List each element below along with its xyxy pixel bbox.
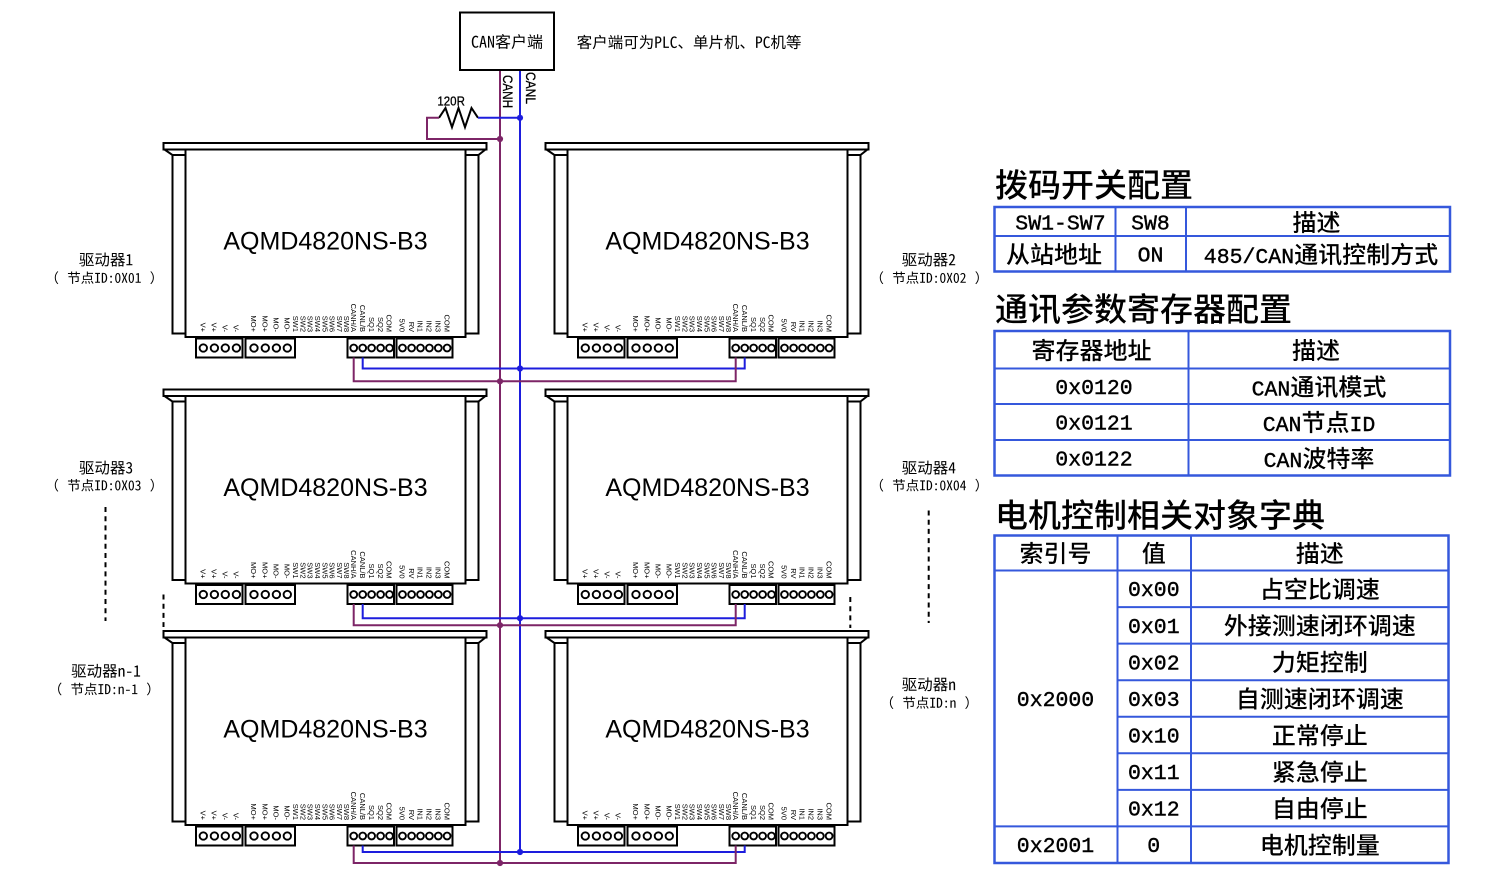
svg-text:AQMD4820NS-B3: AQMD4820NS-B3 xyxy=(605,474,809,502)
svg-text:IN2: IN2 xyxy=(807,808,816,820)
svg-text:V-: V- xyxy=(232,325,241,333)
svg-text:V+: V+ xyxy=(592,323,601,333)
svg-text:MO-: MO- xyxy=(283,317,292,332)
svg-text:SQ2: SQ2 xyxy=(758,317,767,332)
svg-text:CANH/A: CANH/A xyxy=(731,792,740,820)
svg-text:AQMD4820NS-B3: AQMD4820NS-B3 xyxy=(223,716,427,744)
svg-text:AQMD4820NS-B3: AQMD4820NS-B3 xyxy=(605,228,809,256)
svg-text:CANL/B: CANL/B xyxy=(740,305,749,332)
svg-text:V+: V+ xyxy=(210,569,219,579)
svg-text:MO+: MO+ xyxy=(249,316,258,333)
svg-text:0x12: 0x12 xyxy=(1128,799,1180,823)
svg-text:IN2: IN2 xyxy=(425,320,434,332)
svg-text:COM: COM xyxy=(442,561,451,579)
svg-text:V+: V+ xyxy=(199,323,208,333)
svg-text:0x11: 0x11 xyxy=(1128,762,1180,786)
svg-text:CANH/A: CANH/A xyxy=(731,304,740,332)
svg-text:V+: V+ xyxy=(581,323,590,333)
svg-text:COM: COM xyxy=(442,315,451,333)
svg-text:MO-: MO- xyxy=(665,805,674,820)
svg-text:MO+: MO+ xyxy=(261,316,270,333)
svg-text:ID: ID xyxy=(1350,414,1376,438)
svg-text:V-: V- xyxy=(614,325,623,333)
svg-text:COM: COM xyxy=(385,315,394,333)
svg-text:SQ1: SQ1 xyxy=(367,563,376,578)
svg-text:CANH/A: CANH/A xyxy=(349,792,358,820)
svg-text:SQ1: SQ1 xyxy=(749,317,758,332)
svg-text:0: 0 xyxy=(1147,835,1160,859)
svg-text:IN1: IN1 xyxy=(416,808,425,820)
svg-text:V+: V+ xyxy=(581,569,590,579)
svg-text:IN3: IN3 xyxy=(816,320,825,332)
svg-text:MO-: MO- xyxy=(272,564,281,579)
svg-text:MO-: MO- xyxy=(665,564,674,579)
svg-text:0x02: 0x02 xyxy=(1128,652,1180,676)
svg-text:COM: COM xyxy=(767,315,776,333)
svg-text:5V0: 5V0 xyxy=(780,807,789,820)
svg-text:IN2: IN2 xyxy=(807,567,816,579)
svg-text:0x01: 0x01 xyxy=(1128,616,1180,640)
svg-text:RV: RV xyxy=(407,568,416,578)
svg-text:V-: V- xyxy=(221,813,230,821)
svg-text:SQ1: SQ1 xyxy=(367,805,376,820)
svg-text:V+: V+ xyxy=(210,811,219,821)
svg-text:IN3: IN3 xyxy=(816,808,825,820)
svg-text:CANL/B: CANL/B xyxy=(358,793,367,820)
svg-text:V+: V+ xyxy=(592,569,601,579)
svg-text:COM: COM xyxy=(442,803,451,821)
svg-text:5V0: 5V0 xyxy=(780,565,789,578)
svg-text:0x0121: 0x0121 xyxy=(1055,412,1132,436)
svg-text:CANL/B: CANL/B xyxy=(358,305,367,332)
svg-text:MO-: MO- xyxy=(283,564,292,579)
svg-text:MO-: MO- xyxy=(272,317,281,332)
svg-text:IN3: IN3 xyxy=(434,320,443,332)
svg-text:0x0122: 0x0122 xyxy=(1055,448,1132,472)
svg-text:IN3: IN3 xyxy=(816,567,825,579)
svg-text:MO-: MO- xyxy=(654,805,663,820)
svg-text:0x03: 0x03 xyxy=(1128,689,1180,713)
svg-text:IN2: IN2 xyxy=(425,567,434,579)
svg-text:RV: RV xyxy=(789,568,798,578)
svg-text:IN1: IN1 xyxy=(798,567,807,579)
svg-text:485/CAN: 485/CAN xyxy=(1204,246,1294,270)
svg-text:COM: COM xyxy=(385,803,394,821)
svg-text:MO-: MO- xyxy=(665,317,674,332)
svg-text:5V0: 5V0 xyxy=(398,319,407,332)
svg-text:SQ2: SQ2 xyxy=(376,805,385,820)
svg-text:V+: V+ xyxy=(199,569,208,579)
svg-text:RV: RV xyxy=(789,322,798,332)
svg-text:COM: COM xyxy=(824,561,833,579)
svg-text:AQMD4820NS-B3: AQMD4820NS-B3 xyxy=(223,228,427,256)
svg-text:SQ1: SQ1 xyxy=(749,805,758,820)
svg-text:SQ2: SQ2 xyxy=(376,317,385,332)
svg-text:V+: V+ xyxy=(199,811,208,821)
svg-text:MO-: MO- xyxy=(283,805,292,820)
svg-text:SW1-SW7: SW1-SW7 xyxy=(1015,212,1105,236)
svg-text:MO-: MO- xyxy=(272,805,281,820)
svg-text:COM: COM xyxy=(824,803,833,821)
svg-text:IN1: IN1 xyxy=(416,320,425,332)
svg-text:COM: COM xyxy=(767,561,776,579)
svg-text:IN1: IN1 xyxy=(798,320,807,332)
svg-text:V-: V- xyxy=(614,571,623,579)
svg-text:120R: 120R xyxy=(437,94,465,109)
svg-text:MO+: MO+ xyxy=(261,804,270,821)
svg-text:CANL: CANL xyxy=(523,72,538,104)
svg-text:SQ2: SQ2 xyxy=(376,563,385,578)
svg-text:RV: RV xyxy=(407,322,416,332)
svg-text:SQ1: SQ1 xyxy=(749,563,758,578)
svg-text:COM: COM xyxy=(385,561,394,579)
svg-text:MO+: MO+ xyxy=(631,804,640,821)
svg-text:CANL/B: CANL/B xyxy=(740,793,749,820)
svg-text:CANH: CANH xyxy=(500,75,515,108)
svg-text:MO+: MO+ xyxy=(249,562,258,579)
svg-text:CANL/B: CANL/B xyxy=(358,551,367,578)
svg-text:COM: COM xyxy=(824,315,833,333)
svg-text:IN2: IN2 xyxy=(807,320,816,332)
svg-text:0x0120: 0x0120 xyxy=(1055,377,1132,401)
svg-text:AQMD4820NS-B3: AQMD4820NS-B3 xyxy=(605,716,809,744)
svg-text:0x00: 0x00 xyxy=(1128,579,1180,603)
svg-text:AQMD4820NS-B3: AQMD4820NS-B3 xyxy=(223,474,427,502)
svg-text:MO+: MO+ xyxy=(643,804,652,821)
svg-text:IN2: IN2 xyxy=(425,808,434,820)
svg-text:COM: COM xyxy=(767,803,776,821)
svg-text:V+: V+ xyxy=(210,323,219,333)
svg-text:V-: V- xyxy=(603,813,612,821)
svg-text:RV: RV xyxy=(789,810,798,820)
svg-text:0x2000: 0x2000 xyxy=(1017,689,1094,713)
svg-text:SQ1: SQ1 xyxy=(367,317,376,332)
svg-text:MO+: MO+ xyxy=(631,562,640,579)
svg-text:5V0: 5V0 xyxy=(398,565,407,578)
svg-text:MO+: MO+ xyxy=(249,804,258,821)
svg-text:MO+: MO+ xyxy=(643,316,652,333)
svg-text:ON: ON xyxy=(1138,244,1164,268)
svg-text:V-: V- xyxy=(603,571,612,579)
svg-text:CANH/A: CANH/A xyxy=(349,304,358,332)
svg-text:MO+: MO+ xyxy=(643,562,652,579)
svg-text:5V0: 5V0 xyxy=(398,807,407,820)
svg-text:V-: V- xyxy=(232,571,241,579)
svg-text:IN3: IN3 xyxy=(434,567,443,579)
svg-text:MO+: MO+ xyxy=(631,316,640,333)
svg-text:CAN: CAN xyxy=(1264,450,1303,474)
svg-text:IN3: IN3 xyxy=(434,808,443,820)
svg-text:5V0: 5V0 xyxy=(780,319,789,332)
svg-text:MO-: MO- xyxy=(654,317,663,332)
svg-text:0x10: 0x10 xyxy=(1128,725,1180,749)
svg-text:RV: RV xyxy=(407,810,416,820)
svg-text:MO-: MO- xyxy=(654,564,663,579)
svg-text:0x2001: 0x2001 xyxy=(1017,835,1094,859)
svg-text:V-: V- xyxy=(221,325,230,333)
svg-text:CAN: CAN xyxy=(1252,379,1291,403)
svg-text:CANH/A: CANH/A xyxy=(349,550,358,578)
svg-text:SW8: SW8 xyxy=(1131,212,1170,236)
svg-text:V+: V+ xyxy=(592,811,601,821)
svg-text:V-: V- xyxy=(603,325,612,333)
svg-text:MO+: MO+ xyxy=(261,562,270,579)
svg-text:V-: V- xyxy=(614,813,623,821)
svg-text:V-: V- xyxy=(221,571,230,579)
svg-text:V-: V- xyxy=(232,813,241,821)
svg-text:IN1: IN1 xyxy=(416,567,425,579)
svg-text:CAN: CAN xyxy=(1263,414,1302,438)
svg-text:SQ2: SQ2 xyxy=(758,563,767,578)
svg-text:CANH/A: CANH/A xyxy=(731,550,740,578)
svg-text:V+: V+ xyxy=(581,811,590,821)
svg-text:IN1: IN1 xyxy=(798,808,807,820)
svg-text:CANL/B: CANL/B xyxy=(740,551,749,578)
svg-text:SQ2: SQ2 xyxy=(758,805,767,820)
